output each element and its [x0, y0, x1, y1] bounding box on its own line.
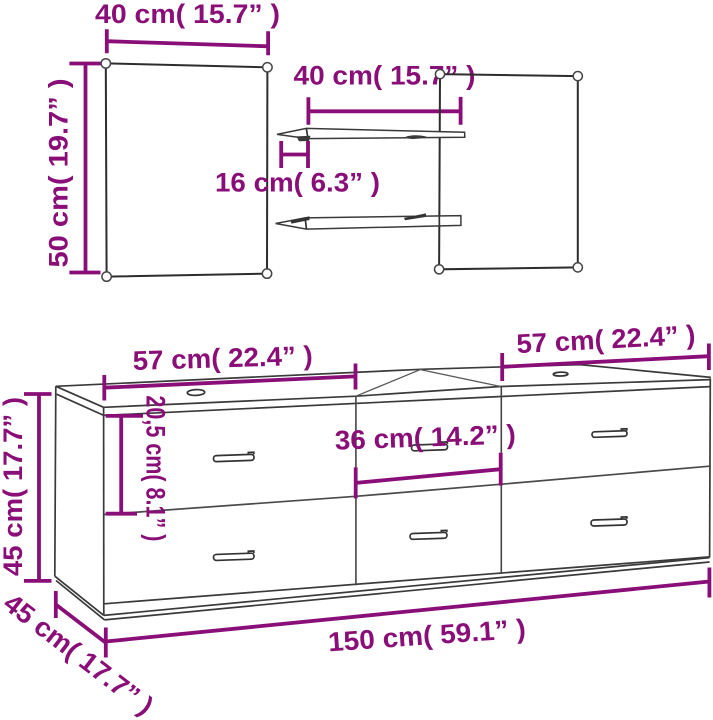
svg-text:16 cm( 6.3” ): 16 cm( 6.3” )	[215, 168, 380, 198]
svg-text:57 cm( 22.4” ): 57 cm( 22.4” )	[132, 341, 313, 376]
svg-text:36 cm( 14.2” ): 36 cm( 14.2” )	[334, 419, 516, 455]
svg-text:20,5 cm( 8.1” ): 20,5 cm( 8.1” )	[141, 395, 171, 541]
svg-text:45 cm( 17.7” ): 45 cm( 17.7” )	[0, 397, 28, 576]
svg-text:40 cm( 15.7” ): 40 cm( 15.7” )	[294, 61, 476, 91]
svg-text:50 cm( 19.7” ): 50 cm( 19.7” )	[44, 79, 74, 268]
svg-text:40 cm( 15.7” ): 40 cm( 15.7” )	[95, 0, 280, 29]
